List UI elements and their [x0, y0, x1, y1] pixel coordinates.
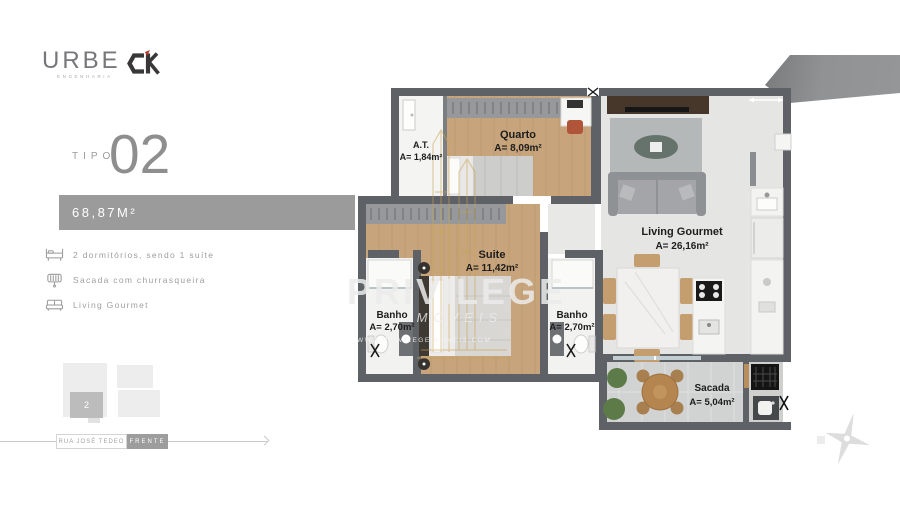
- bed-icon: [45, 247, 64, 263]
- street-front-label: FRENTE: [127, 434, 168, 449]
- room-name-banho1: Banho: [376, 310, 407, 321]
- watermark-brand: PRIVILEGE: [347, 271, 566, 312]
- feature-list: 2 dormitórios, sendo 1 suíte Sacada com …: [45, 247, 214, 313]
- keyplan-block: [118, 390, 160, 417]
- room-area-banho1: A= 2,70m²: [369, 322, 414, 333]
- room-name-at: A.T.: [413, 140, 429, 150]
- desk-chair: [567, 120, 583, 134]
- street-arrow-icon: [260, 436, 270, 446]
- feature-living-gourmet: Living Gourmet: [45, 297, 214, 313]
- room-area-banho2: A= 2,70m²: [549, 322, 594, 333]
- floor-plan: PRIVILEGE IMÓVEIS WWW.PRIVILEGEIMOVEIS.C…: [355, 82, 795, 443]
- ck-logo: [124, 50, 160, 82]
- ck-logo-icon: [124, 50, 160, 77]
- room-area-quarto: A= 8,09m²: [494, 143, 542, 154]
- tipo-number: 02: [109, 127, 170, 182]
- urbe-tagline: ENGENHARIA: [57, 74, 113, 79]
- watermark-site: WWW.PRIVILEGEIMOVEIS.COM: [357, 337, 491, 344]
- total-area-badge: 68,87M²: [59, 195, 355, 230]
- sofa: [608, 172, 706, 216]
- urbe-logo: URBE: [42, 49, 121, 73]
- dining-set: [603, 254, 693, 362]
- plant: [603, 398, 625, 420]
- feature-label: Sacada com churrasqueira: [73, 275, 206, 285]
- grill-icon: [45, 272, 64, 288]
- room-area-at: A= 1,84m²: [400, 152, 443, 162]
- floor-plan-svg: PRIVILEGE IMÓVEIS WWW.PRIVILEGEIMOVEIS.C…: [355, 82, 795, 438]
- room-area-suite: A= 11,42m²: [466, 263, 519, 274]
- plant: [607, 368, 627, 388]
- room-name-banho2: Banho: [556, 310, 587, 321]
- feature-churrasqueira: Sacada com churrasqueira: [45, 272, 214, 288]
- keyplan: 2: [63, 362, 173, 426]
- room-name-living: Living Gourmet: [641, 226, 723, 238]
- room-name-quarto: Quarto: [500, 129, 536, 141]
- room-area-living: A= 26,16m²: [655, 241, 709, 252]
- keyplan-unit-highlight: 2: [70, 392, 103, 418]
- watermark-segment: IMÓVEIS: [407, 310, 503, 325]
- brochure-page: URBE ENGENHARIA TIPO 02 68,87M² 2 dormit…: [0, 0, 900, 506]
- room-name-suite: Suite: [479, 249, 506, 261]
- street-name-label: RUA JOSÉ TEDEO: [56, 434, 127, 449]
- kitchen-island: [693, 278, 725, 354]
- feature-label: Living Gourmet: [73, 300, 149, 310]
- compass-star-icon: [815, 410, 885, 475]
- feature-dormitorios: 2 dormitórios, sendo 1 suíte: [45, 247, 214, 263]
- room-name-sacada: Sacada: [694, 383, 729, 394]
- room-area-sacada: A= 5,04m²: [689, 397, 734, 408]
- feature-label: 2 dormitórios, sendo 1 suíte: [73, 250, 214, 260]
- sofa-icon: [45, 297, 64, 313]
- keyplan-block: [117, 365, 153, 388]
